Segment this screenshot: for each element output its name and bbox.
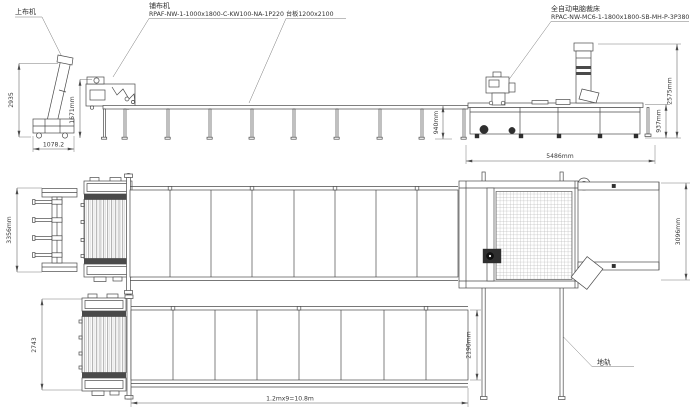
spreader-plan-upper bbox=[81, 173, 133, 294]
cad-canvas: 上布机 铺布机 RPAF-NW-1-1000x1800-C-KW100-NA-1… bbox=[0, 0, 700, 412]
dim-table-height-text: 940mm bbox=[433, 111, 440, 135]
dim-loader-height-text: 2935 bbox=[8, 92, 15, 108]
cutting-bed-mesh bbox=[496, 192, 572, 280]
dim-cutter-length-text: 5486mm bbox=[546, 153, 573, 160]
cutter-label: 全自动电脑裁床 bbox=[551, 4, 600, 13]
cutter-model: RPAC-NW-MC6-1-1800x1800-SB-MH-P-3P380 bbox=[551, 14, 689, 21]
spreader-rail-lower bbox=[127, 295, 131, 399]
table-plan-lower bbox=[131, 307, 468, 388]
spreader-model: RPAF-NW-1-1000x1800-C-KW100-NA-1P220 bbox=[149, 11, 284, 18]
spreader-label: 铺布机 bbox=[149, 1, 170, 10]
dim-cutter-height-text: 2575mm bbox=[667, 77, 674, 104]
table-board-label: 台板1200x2100 bbox=[286, 10, 334, 18]
dim-loader-base-text: 1078.2 bbox=[43, 142, 64, 149]
dim-table-length-text: 1.2mx9=10.8m bbox=[266, 396, 314, 403]
dim-cutter-plan-depth-text: 3096mm bbox=[675, 218, 682, 245]
cutter-beam-plan bbox=[487, 188, 494, 281]
dim-rail-span-text: 2190mm bbox=[466, 331, 473, 358]
spreader-plan-lower bbox=[79, 294, 133, 399]
dim-bottom-view-depth-text: 2743 bbox=[31, 337, 38, 353]
table-plan-upper bbox=[130, 187, 458, 281]
dim-cutter-table-height-text: 937mm bbox=[656, 109, 663, 133]
dim-spreader-height-text: 1671mm bbox=[69, 96, 76, 123]
equipment-layout-drawing: 上布机 铺布机 RPAF-NW-1-1000x1800-C-KW100-NA-1… bbox=[0, 0, 700, 412]
dim-top-view-depth-text: 3356mm bbox=[6, 216, 13, 243]
loader-label: 上布机 bbox=[15, 7, 36, 16]
ground-rail-label: 地轨 bbox=[597, 358, 611, 367]
